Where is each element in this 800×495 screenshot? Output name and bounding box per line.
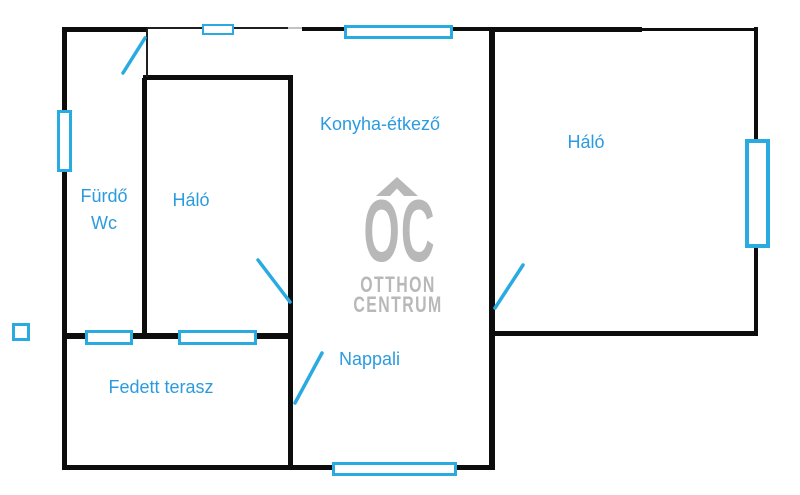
window-bottom — [332, 462, 457, 476]
window-left-wall — [57, 110, 72, 172]
wall-center-divider — [288, 75, 293, 470]
window-top-large — [344, 25, 453, 39]
watermark-logo: OC — [364, 187, 433, 275]
room-label-halo-left: Háló — [146, 189, 236, 211]
wall-konyha-halo-divider — [489, 27, 495, 470]
wall-top-right-a — [490, 27, 642, 32]
wall-top-left-thick — [62, 27, 147, 32]
door-swing-halo-right — [495, 265, 523, 308]
window-right-wall — [745, 139, 770, 248]
watermark-line2: CENTRUM — [351, 294, 445, 316]
floor-plan-canvas: OC OTTHON CENTRUM Fürdő Wc Háló Konyha-é… — [0, 0, 800, 495]
door-swing-nappali — [295, 353, 322, 403]
room-label-furdo-line1: Fürdő — [64, 183, 144, 210]
window-top-small — [202, 24, 234, 35]
wall-furdo-right-connector — [146, 29, 148, 77]
door-swing-furdo — [123, 38, 145, 73]
room-label-fedett-terasz: Fedett terasz — [90, 376, 232, 398]
wall-top-gap-faint — [288, 27, 302, 29]
room-label-furdo-line2: Wc — [64, 210, 144, 237]
window-terasz-right — [178, 330, 257, 345]
wall-top-right-b — [642, 28, 758, 31]
room-label-halo-right: Háló — [536, 131, 636, 153]
door-swing-halo-left — [258, 260, 290, 302]
wall-halo-right-bottom — [489, 331, 758, 336]
window-terasz-left — [85, 330, 133, 345]
wall-left-outer — [62, 27, 67, 470]
room-label-nappali: Nappali — [339, 348, 469, 370]
room-label-furdo-wc: Fürdő Wc — [64, 183, 144, 237]
room-label-konyha-etkezo: Konyha-étkező — [294, 113, 466, 135]
detached-square-marker — [12, 323, 30, 341]
wall-halo-left-top — [143, 75, 293, 80]
